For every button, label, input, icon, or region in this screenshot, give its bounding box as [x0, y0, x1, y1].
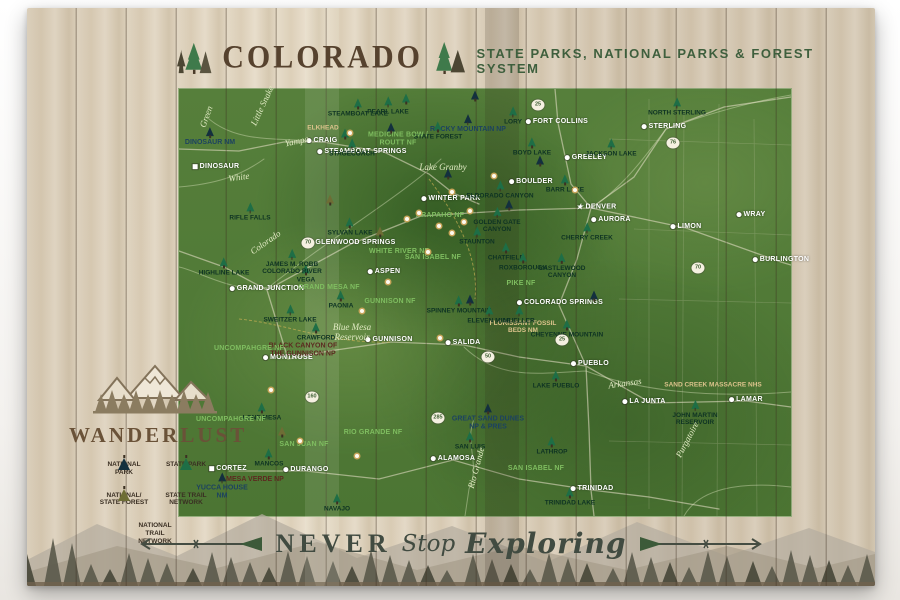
- poster-photo: COLORADO STATE PARKS, NATIONAL PARKS & F…: [0, 0, 900, 600]
- mountain-illustration: [89, 360, 221, 416]
- legend-item-label: STATE TRAIL NETWORK: [165, 492, 206, 508]
- pine-trees-icon: [433, 39, 467, 77]
- legend-item: NATIONAL/ STATE FOREST: [98, 489, 150, 508]
- legend-item: NATIONAL PARK: [98, 458, 150, 477]
- footer-word-stop: Stop: [402, 531, 456, 557]
- poster-title: COLORADO: [222, 40, 423, 77]
- poster-subtitle: STATE PARKS, NATIONAL PARKS & FOREST SYS…: [477, 40, 817, 76]
- pine-trees-icon: [177, 38, 212, 78]
- footer-word-never: NEVER: [276, 529, 392, 559]
- arrow-left-icon: [136, 535, 266, 553]
- footer-slogan: NEVER Stop Exploring: [27, 527, 875, 560]
- poster-header: COLORADO STATE PARKS, NATIONAL PARKS & F…: [177, 32, 817, 84]
- footer-word-exploring: Exploring: [465, 527, 626, 560]
- legend-brand: WANDERLUST: [69, 423, 241, 448]
- roads-and-rivers-lines: [179, 89, 791, 516]
- arrow-right-icon: [636, 535, 766, 553]
- wood-sign-board: COLORADO STATE PARKS, NATIONAL PARKS & F…: [27, 8, 875, 586]
- legend: WANDERLUST NATIONAL PARKSTATE PARKNATION…: [69, 360, 241, 546]
- legend-item: STATE TRAIL NETWORK: [160, 489, 212, 508]
- colorado-map: [178, 88, 792, 517]
- legend-item: STATE PARK: [160, 458, 212, 477]
